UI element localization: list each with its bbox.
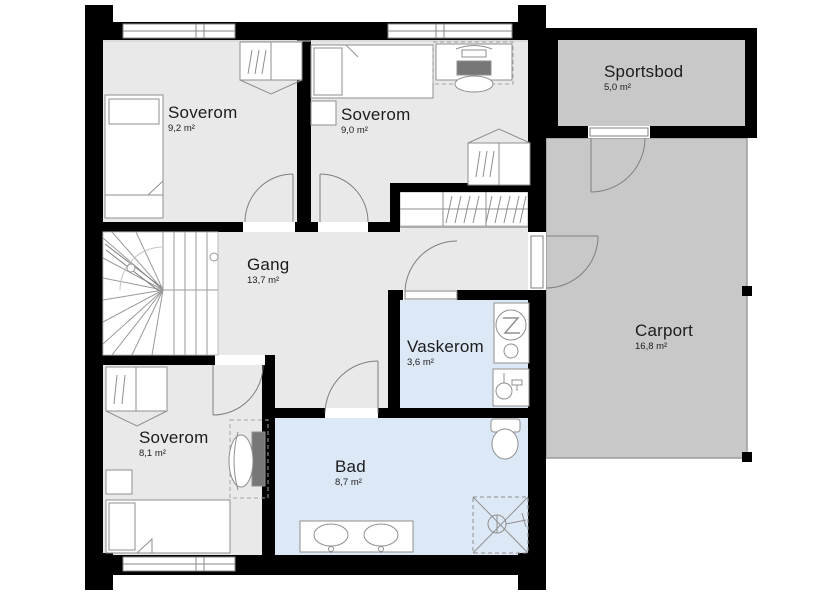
wall-soverom3-north: [103, 355, 215, 365]
wall-right: [528, 22, 546, 575]
pier-top-left: [85, 5, 113, 40]
floorplan-page: Soverom 9,2 m² Soverom 9,0 m² Sportsbod …: [0, 0, 838, 593]
wall-sportsbod-north: [546, 28, 757, 40]
pier-bottom-right: [518, 553, 546, 590]
gap-soverom-3-door: [215, 355, 265, 365]
wall-sportsbod-south: [546, 126, 757, 138]
toilet-icon: [491, 419, 520, 459]
sink-icon: [493, 369, 529, 406]
wall-sportsbod-east: [745, 28, 757, 138]
nightstand-icon: [311, 101, 336, 125]
desk-icon: [433, 42, 513, 92]
wall-closet-west: [390, 183, 400, 232]
carport-post: [742, 286, 752, 296]
wall-vaskerom-west: [388, 290, 400, 410]
gap-soverom-2-door: [318, 222, 368, 232]
gap-soverom-1-door: [243, 222, 295, 232]
double-sink-vanity-icon: [300, 521, 413, 553]
floorplan-drawing: [0, 0, 838, 593]
pier-top-right: [518, 5, 546, 40]
washing-machine-icon: [494, 303, 529, 363]
window-icon: [123, 24, 235, 38]
carport-floor: [546, 138, 747, 458]
bed-icon: [105, 95, 163, 218]
nightstand-icon: [106, 470, 132, 494]
chair-icon: [455, 76, 493, 92]
bed-icon: [106, 500, 230, 553]
window-icon: [388, 24, 512, 38]
sportsbod-floor: [558, 40, 745, 126]
window-icon: [123, 557, 235, 571]
stairs-icon: [103, 232, 218, 355]
carport-post: [742, 452, 752, 462]
gap-bad-door: [325, 408, 378, 418]
wall-sportsbod-west: [546, 28, 558, 138]
wall-left: [85, 22, 103, 575]
pier-bottom-left: [85, 553, 113, 590]
chair-icon: [229, 435, 253, 487]
